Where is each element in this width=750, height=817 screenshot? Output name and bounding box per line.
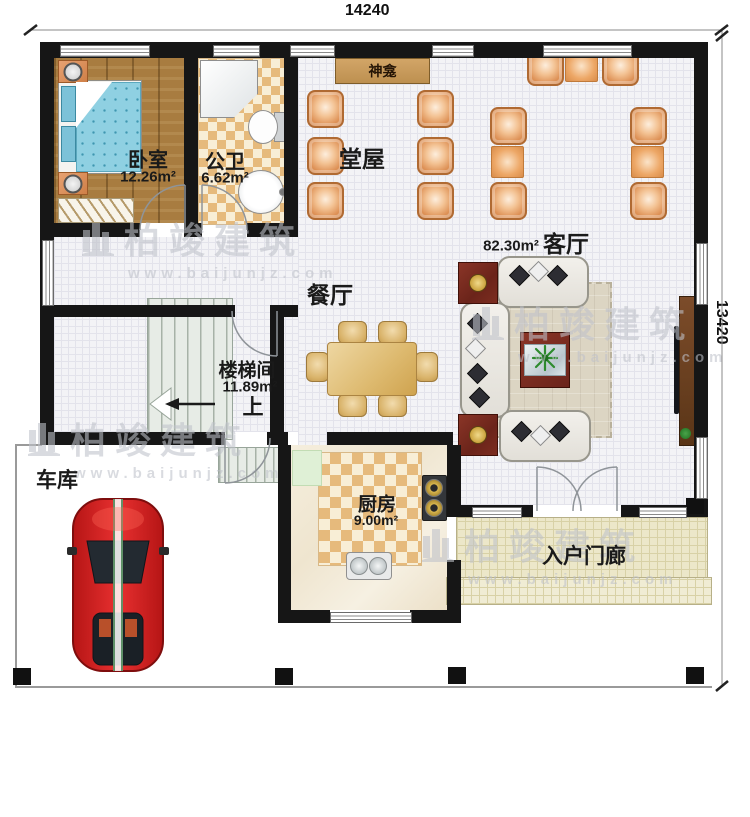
dining-chair — [306, 352, 329, 382]
dining-chair — [338, 394, 367, 417]
dimension-height-label: 13420 — [712, 300, 730, 345]
stove-burner-icon — [425, 499, 443, 517]
window — [543, 45, 632, 57]
wall — [184, 58, 198, 237]
dining-chair — [415, 352, 438, 382]
wall — [278, 610, 330, 623]
tv-cabinet — [679, 296, 695, 446]
garage-boundary-top — [15, 444, 42, 446]
wall — [267, 432, 288, 445]
lamp-icon — [64, 174, 83, 193]
sofa-top — [497, 256, 589, 308]
window — [290, 45, 335, 57]
bedroom-area: 12.26m² — [120, 169, 176, 186]
side-table — [458, 262, 498, 304]
medallion-icon — [469, 426, 487, 444]
column — [448, 667, 466, 684]
plan-boundary-bottom — [15, 686, 712, 688]
window — [696, 437, 708, 499]
hall-label: 堂屋 — [339, 140, 385, 174]
window — [42, 240, 54, 306]
bed-pillow — [61, 86, 76, 122]
medallion-icon — [469, 274, 487, 292]
wall — [327, 432, 453, 445]
tea-table — [631, 146, 664, 178]
stairs-up-label: 上 — [243, 391, 264, 421]
window — [330, 612, 412, 623]
side-table — [458, 414, 498, 456]
hall-chair — [490, 182, 527, 220]
hall-chair — [490, 107, 527, 145]
wall — [247, 223, 298, 237]
car-icon — [65, 495, 170, 675]
bed-pillow — [61, 126, 76, 162]
wall — [40, 305, 235, 317]
garage-boundary-left — [15, 444, 17, 688]
living-label: 客厅 — [543, 225, 589, 259]
sink-basin-icon — [369, 557, 387, 575]
plant-icon — [530, 343, 560, 373]
entry-steps — [218, 447, 282, 483]
wall — [40, 432, 225, 445]
window — [213, 45, 260, 57]
porch-steps — [446, 577, 712, 605]
hall-chair — [630, 182, 667, 220]
kitchen-door-mat — [292, 450, 322, 486]
bathroom-area: 6.62m² — [201, 170, 249, 187]
porch-label: 入户门廊 — [542, 540, 626, 570]
column — [686, 498, 704, 514]
garage-label: 车库 — [36, 464, 78, 494]
hall-chair — [417, 182, 454, 220]
wall — [284, 42, 298, 237]
wall — [40, 223, 140, 237]
shrine-cabinet: 神龛 — [335, 58, 430, 84]
toilet-icon — [248, 110, 278, 144]
column — [13, 668, 31, 685]
tea-table — [491, 146, 524, 178]
sink-basin-icon — [350, 557, 368, 575]
wardrobe — [58, 198, 134, 223]
column — [686, 667, 704, 684]
tv-icon — [674, 326, 679, 414]
hall-chair — [630, 107, 667, 145]
shrine-label: 神龛 — [369, 61, 397, 81]
window — [60, 45, 150, 57]
wall — [185, 223, 202, 237]
hall-chair — [307, 90, 344, 128]
hall-chair — [307, 182, 344, 220]
floor-plan-sheet: 14240 13420 神龛 — [0, 0, 750, 817]
dining-chair — [338, 321, 367, 344]
dining-chair — [378, 321, 407, 344]
decor-plant-icon — [680, 428, 691, 439]
window — [472, 507, 522, 518]
kitchen-area: 9.00m² — [354, 512, 398, 528]
dining-chair — [378, 394, 407, 417]
window — [639, 507, 687, 518]
lamp-icon — [64, 62, 83, 81]
hall-chair — [417, 137, 454, 175]
dining-table — [327, 342, 417, 396]
stove-burner-icon — [425, 479, 443, 497]
wall — [410, 610, 461, 623]
window — [432, 45, 474, 57]
nightstand — [58, 172, 88, 195]
hall-chair — [417, 90, 454, 128]
dining-label: 餐厅 — [307, 276, 353, 310]
column — [275, 668, 293, 685]
dimension-width-label: 14240 — [345, 2, 390, 20]
wall — [278, 445, 291, 623]
hall-area: 82.30m² — [483, 238, 539, 255]
title-block: 一层平面图 1:100 本层建筑面积：144.08m² 本栋建筑面积：258.5… — [0, 700, 750, 817]
nightstand — [58, 60, 88, 83]
window — [696, 243, 708, 305]
